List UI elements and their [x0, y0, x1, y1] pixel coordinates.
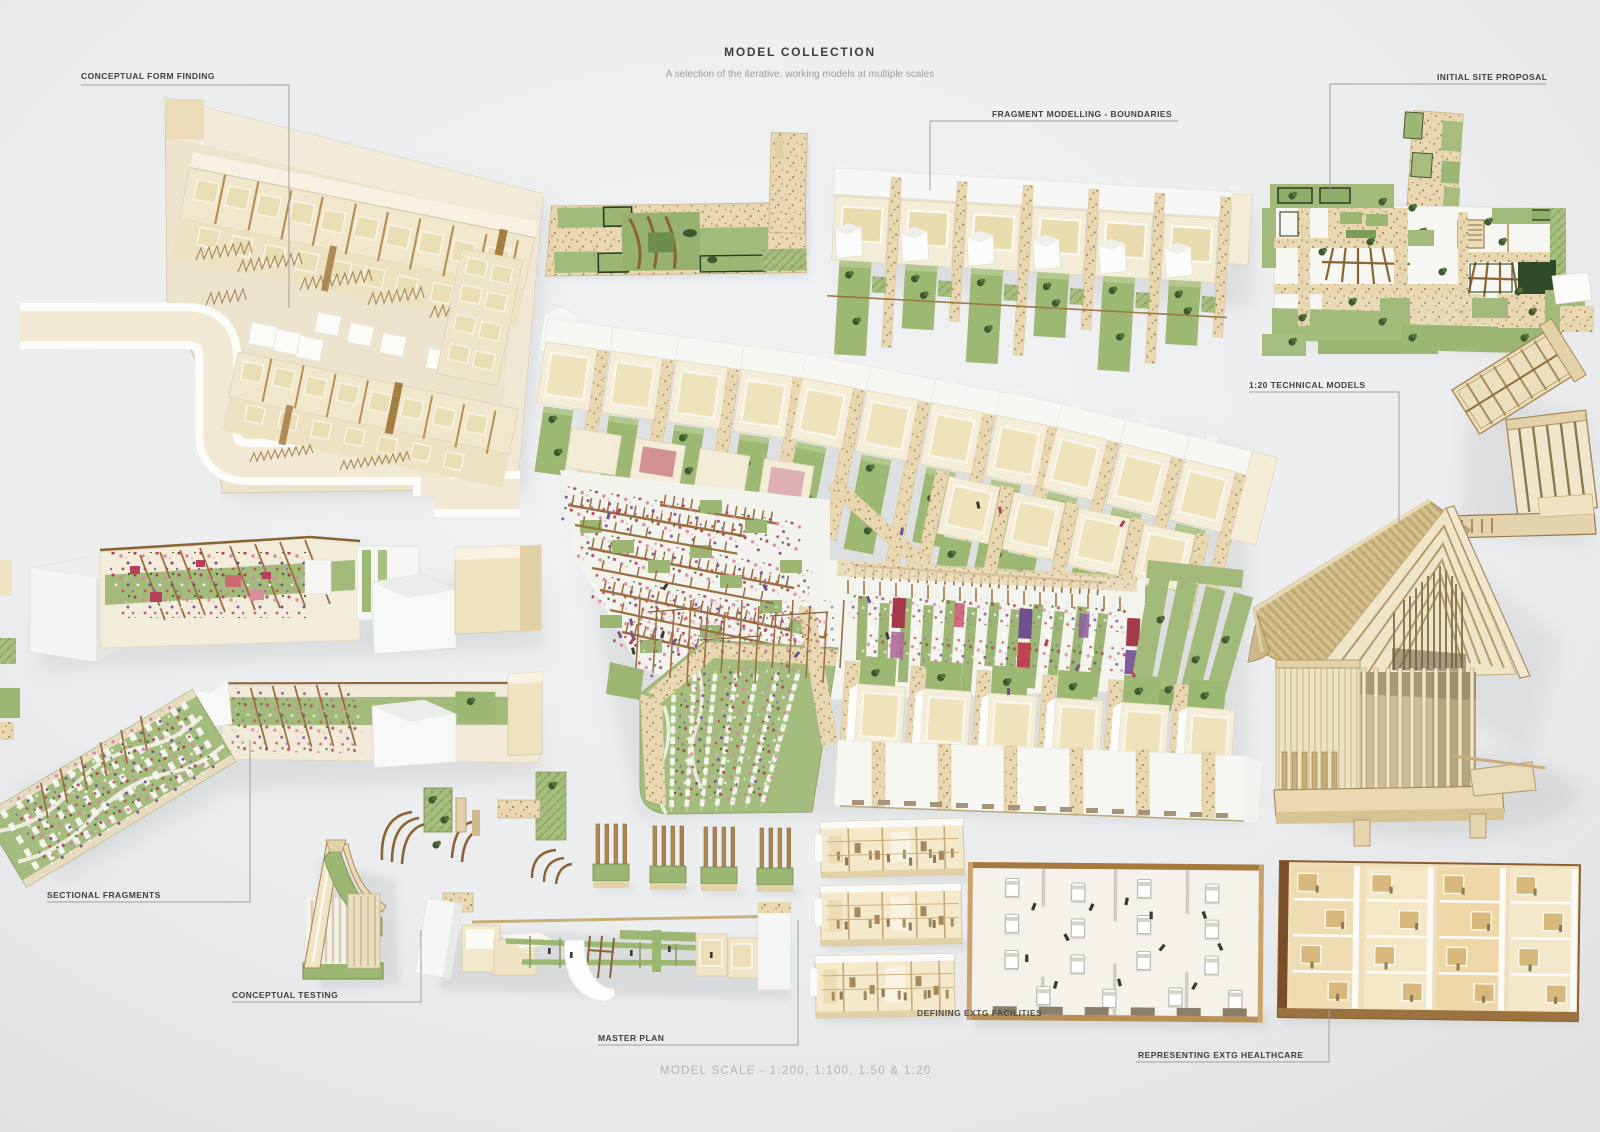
svg-text:CONCEPTUAL TESTING: CONCEPTUAL TESTING	[232, 990, 338, 1000]
svg-text:A selection of the iterative,: A selection of the iterative, working mo…	[666, 69, 934, 80]
svg-text:FRAGMENT MODELLING - BOUNDARIE: FRAGMENT MODELLING - BOUNDARIES	[992, 109, 1172, 119]
svg-text:MODEL SCALE - 1:200, 1:100, 1:: MODEL SCALE - 1:200, 1:100, 1:50 & 1:20	[660, 1065, 931, 1077]
svg-text:DEFINING EXTG FACILITIES: DEFINING EXTG FACILITIES	[917, 1008, 1042, 1018]
svg-text:INITIAL SITE PROPOSAL: INITIAL SITE PROPOSAL	[1437, 72, 1547, 82]
svg-text:MASTER PLAN: MASTER PLAN	[598, 1033, 664, 1043]
svg-text:MODEL COLLECTION: MODEL COLLECTION	[724, 45, 876, 59]
svg-text:1:20 TECHNICAL MODELS: 1:20 TECHNICAL MODELS	[1249, 380, 1366, 390]
svg-text:REPRESENTING EXTG HEALTHCARE: REPRESENTING EXTG HEALTHCARE	[1138, 1050, 1303, 1060]
svg-text:CONCEPTUAL FORM FINDING: CONCEPTUAL FORM FINDING	[81, 71, 215, 81]
svg-text:SECTIONAL FRAGMENTS: SECTIONAL FRAGMENTS	[47, 890, 161, 900]
